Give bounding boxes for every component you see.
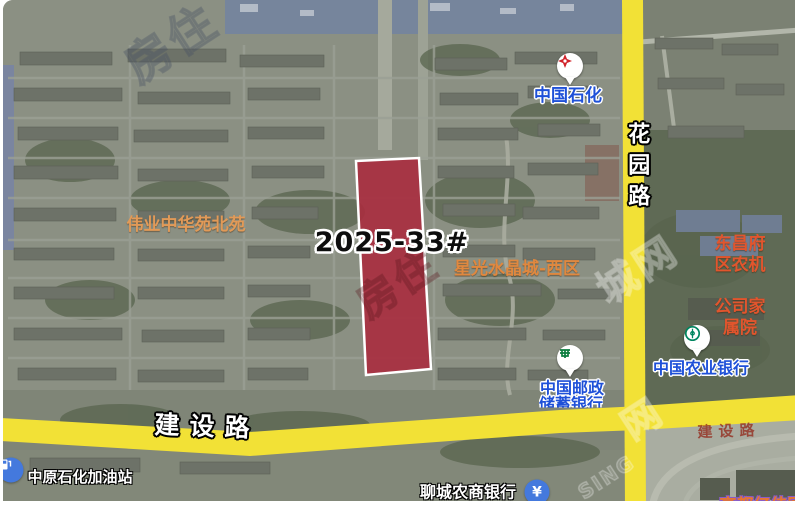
label-partial-bottom-right: 高都亿佳园	[720, 496, 796, 501]
map-frame: 房住 房住 城网 网 SING 2025-33# 建设路 花园路 建设路 伟业中…	[3, 0, 795, 501]
road-label-huayuan: 花园路	[623, 122, 649, 215]
screenshot-stage: 房住 房住 城网 网 SING 2025-33# 建设路 花园路 建设路 伟业中…	[0, 0, 800, 508]
yen-bank-icon[interactable]: ¥	[525, 480, 550, 502]
road-label-jianshe: 建设路	[154, 410, 260, 444]
nongji-line2: 公司家属院	[715, 297, 766, 338]
map-viewport[interactable]: 房住 房住 城网 网 SING 2025-33# 建设路 花园路 建设路 伟业中…	[3, 0, 795, 501]
label-nongji-compound: 东昌府区农机 公司家属院	[710, 213, 770, 339]
label-rural-bank[interactable]: 聊城农商银行	[420, 482, 516, 501]
label-weiye-zhonghuayuan: 伟业中华苑北苑	[127, 215, 246, 235]
road-label-jianshe-faded: 建设路	[697, 421, 761, 441]
label-abc-bank[interactable]: 中国农业银行	[653, 358, 749, 377]
road-huayuan	[622, 0, 646, 501]
poi-pin-postal-bank[interactable]	[557, 345, 583, 377]
parcel-number-label: 2025-33#	[315, 227, 470, 259]
poi-pin-sinopec[interactable]	[557, 53, 583, 85]
yen-symbol: ¥	[532, 485, 542, 499]
parcel-highlight[interactable]	[356, 158, 431, 375]
nongji-line1: 东昌府区农机	[715, 234, 766, 275]
poi-pin-abc-bank[interactable]	[684, 325, 710, 357]
label-sinopec[interactable]: 中国石化	[534, 86, 602, 106]
label-gas-station[interactable]: 中原石化加油站	[27, 468, 132, 486]
label-xingguang-crystal-city: 星光水晶城-西区	[454, 259, 580, 279]
